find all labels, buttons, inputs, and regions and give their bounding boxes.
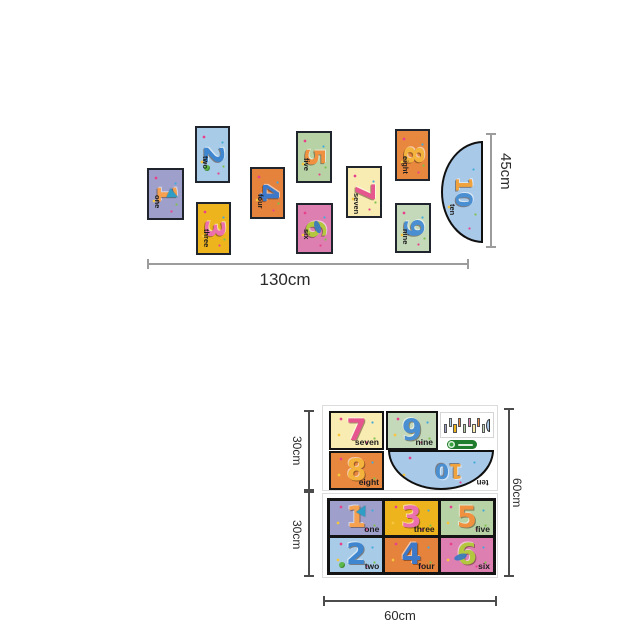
number-word-inverted: ten — [412, 456, 489, 486]
thumb-card-three — [453, 424, 456, 433]
ball-icon — [339, 562, 345, 568]
banner-card-nine: 9 nine — [395, 203, 431, 253]
number-word: one — [364, 525, 379, 534]
sheet-card-seven: 7 seven — [329, 411, 384, 450]
dimension-line-banner-width — [147, 263, 469, 265]
number-word: three — [414, 525, 435, 534]
number-word: eight — [359, 478, 379, 487]
banner-card-four: 4 four — [250, 167, 285, 219]
number-word: nine — [416, 438, 433, 447]
digit-1: 1 — [450, 177, 475, 192]
sheet-card-one: 1 one — [330, 501, 382, 535]
banner-card-one: 1 one — [147, 168, 184, 220]
number-word: nine — [402, 229, 410, 244]
sheet-card-ten-halfcircle-inverted: 10 ten — [388, 450, 494, 490]
number-word: two — [365, 562, 380, 571]
thumb-card-seven — [472, 424, 475, 433]
number-word: six — [478, 562, 490, 571]
number-word: ten — [449, 204, 457, 215]
number-word: four — [257, 194, 265, 209]
brand-logo — [447, 440, 477, 449]
number-word: four — [418, 562, 435, 571]
numeral-5: 5 — [457, 503, 477, 532]
dimension-label-sheet-width: 60cm — [330, 608, 470, 623]
number-word: one — [154, 195, 162, 208]
banner-card-six: 6 six — [296, 203, 333, 254]
sheet-card-eight: 8 eight — [329, 451, 384, 490]
thumb-card-ten — [486, 419, 490, 432]
number-word: seven — [355, 438, 379, 447]
number-word: two — [202, 156, 210, 169]
banner-card-three: 3 three — [196, 202, 231, 255]
dimension-line-sheet-width — [323, 600, 497, 602]
dimension-label-banner-height: 45cm — [497, 153, 514, 190]
sheet-card-three: 3 three — [385, 501, 437, 535]
thumb-card-two — [449, 418, 452, 427]
sheet-card-two: 2 two — [330, 538, 382, 572]
dimension-label-row-top: 30cm — [290, 436, 304, 465]
product-dimensions-image: 1 one 2 two 3 three 4 four 5 five 6 six … — [0, 0, 640, 640]
number-word: three — [203, 229, 211, 247]
dimension-line-sheet-row-bottom — [308, 491, 310, 577]
dimension-label-sheet-height: 60cm — [510, 478, 524, 507]
banner-card-ten-halfcircle: 10 ten — [441, 141, 483, 243]
sheet-card-four: 4 four — [385, 538, 437, 572]
dimension-line-sheet-row-top — [308, 410, 310, 491]
sheet-card-six: 6 six — [441, 538, 493, 572]
sheet-card-five: 5 five — [441, 501, 493, 535]
number-word: five — [303, 158, 311, 171]
banner-card-seven: 7 seven — [346, 166, 382, 218]
number-word: eight — [402, 156, 410, 174]
thumb-card-four — [458, 418, 461, 427]
thumb-card-nine — [482, 424, 485, 433]
banner-card-two: 2 two — [195, 126, 230, 183]
thumb-card-five — [463, 424, 466, 433]
layout-thumbnail — [440, 412, 494, 438]
banner-card-eight: 8 eight — [395, 129, 430, 181]
numeral-10: 10 — [451, 177, 473, 208]
banner-card-five: 5 five — [296, 131, 332, 183]
sticker-sheet-bottom: 1 one 3 three 5 five 2 two — [322, 493, 498, 578]
number-word: five — [475, 525, 490, 534]
dimension-line-banner-height — [490, 133, 492, 248]
thumb-card-one — [444, 424, 447, 433]
sticker-grid: 1 one 3 three 5 five 2 two — [327, 498, 496, 575]
number-word: six — [303, 229, 311, 239]
thumb-card-six — [468, 418, 471, 427]
dimension-label-row-bottom: 30cm — [290, 520, 304, 549]
number-word: seven — [353, 193, 361, 214]
sheet-card-nine: 9 nine — [386, 411, 438, 450]
sticker-sheet-top: 7 seven 9 nine 8 eight 10 ten — [322, 405, 498, 491]
numeral-2: 2 — [346, 540, 366, 569]
dimension-label-banner-width: 130cm — [185, 270, 385, 290]
thumb-card-eight — [477, 418, 480, 427]
